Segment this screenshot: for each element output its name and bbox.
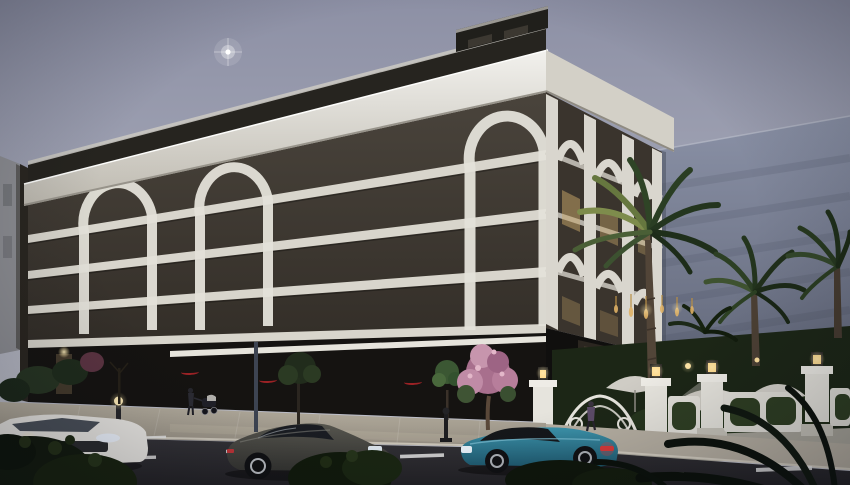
fence-panel (830, 388, 850, 426)
street-pole (254, 342, 258, 432)
background-building-left (0, 156, 20, 354)
render-scene (0, 0, 850, 485)
garden-lamp (755, 358, 760, 363)
fence-panel (668, 396, 700, 436)
bright-star (214, 38, 242, 66)
property-night-render (0, 0, 850, 485)
